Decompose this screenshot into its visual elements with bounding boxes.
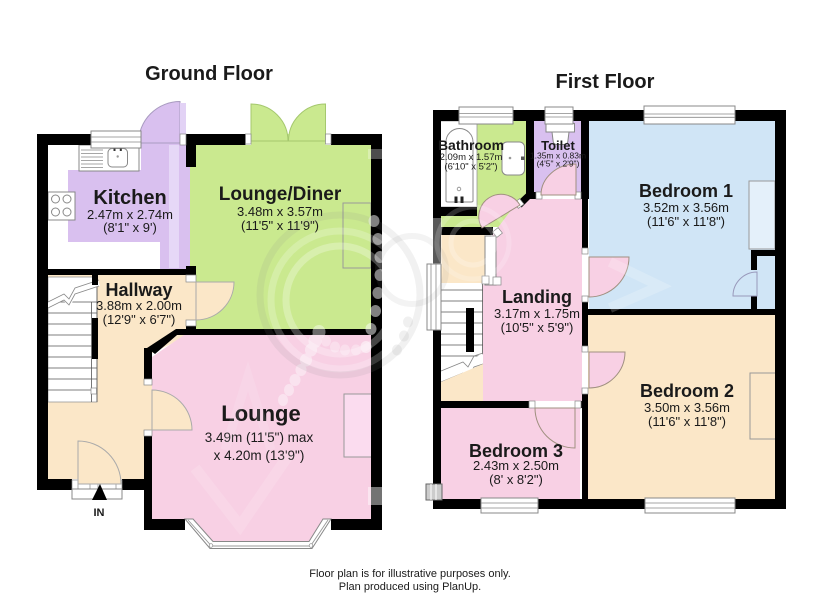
svg-text:3.52m x 3.56m: 3.52m x 3.56m [643,200,729,215]
svg-text:Plan produced using PlanUp.: Plan produced using PlanUp. [339,581,481,593]
svg-text:(11'6" x 11'8"): (11'6" x 11'8") [648,414,726,429]
svg-text:(12'9" x 6'7"): (12'9" x 6'7") [103,312,176,327]
svg-text:Landing: Landing [502,287,572,307]
svg-text:Bedroom 2: Bedroom 2 [640,381,734,401]
svg-text:3.50m x 3.56m: 3.50m x 3.56m [644,400,730,415]
svg-text:Bathroom: Bathroom [438,137,504,153]
svg-text:IN: IN [94,507,105,519]
svg-text:(8'1" x 9'): (8'1" x 9') [103,220,157,235]
svg-text:(10'5" x 5'9"): (10'5" x 5'9") [501,320,574,335]
svg-text:(11'6" x 11'8"): (11'6" x 11'8") [647,214,725,229]
svg-text:Ground Floor: Ground Floor [145,63,273,85]
svg-text:(8' x 8'2"): (8' x 8'2") [489,472,543,487]
svg-text:3.49m (11'5") max: 3.49m (11'5") max [205,430,314,445]
svg-text:Kitchen: Kitchen [93,187,166,209]
svg-text:Hallway: Hallway [105,280,172,300]
svg-text:Bedroom 1: Bedroom 1 [639,181,733,201]
svg-text:(4'5" x 2'9"): (4'5" x 2'9") [537,159,580,169]
svg-text:(6'10" x 5'2"): (6'10" x 5'2") [444,162,497,173]
svg-text:3.48m x 3.57m: 3.48m x 3.57m [237,204,323,219]
svg-text:2.43m x 2.50m: 2.43m x 2.50m [473,458,559,473]
svg-text:Floor plan is for illustrative: Floor plan is for illustrative purposes … [309,568,511,580]
svg-text:3.88m x 2.00m: 3.88m x 2.00m [96,298,182,313]
svg-text:First Floor: First Floor [556,71,655,93]
svg-text:Lounge/Diner: Lounge/Diner [219,184,342,205]
svg-text:3.17m x 1.75m: 3.17m x 1.75m [494,306,580,321]
